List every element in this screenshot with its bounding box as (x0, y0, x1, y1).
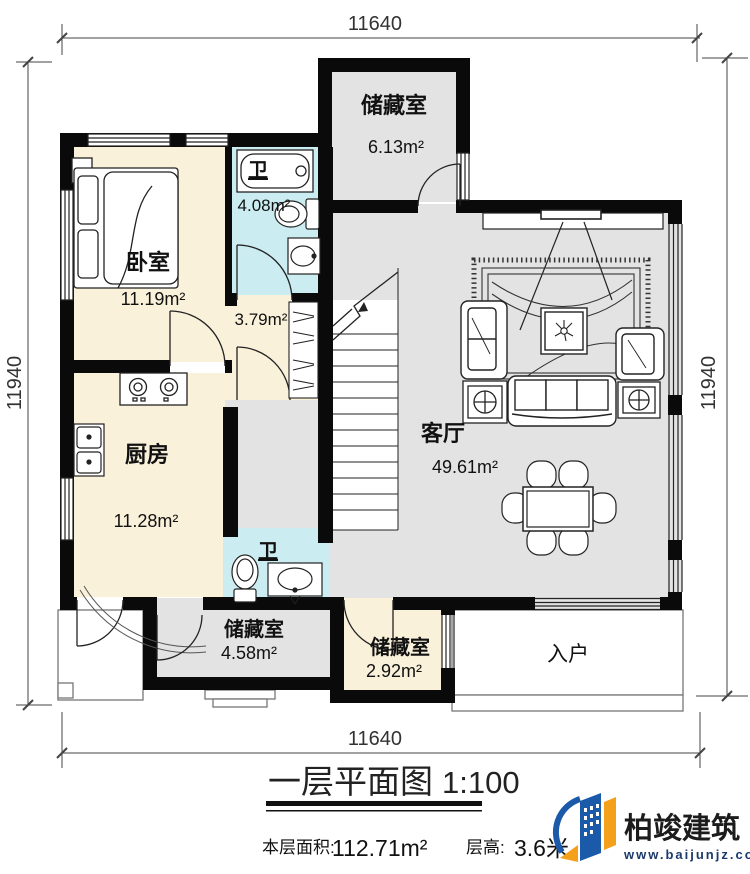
floor-area-value: 112.71m² (332, 835, 428, 861)
sofa-right (616, 328, 664, 380)
tv (541, 210, 601, 219)
bath-bottom-label: 卫 (258, 541, 278, 563)
back-step-1 (205, 690, 275, 699)
stove (120, 373, 187, 405)
brand-name: 柏竣建筑 (624, 811, 740, 845)
toilet-bottom (232, 555, 258, 602)
kitchen-floor (72, 373, 225, 597)
bedroom-top-window-1 (88, 134, 170, 146)
storage-top-side-window (457, 153, 469, 200)
porch-column (58, 683, 73, 698)
hall-area: 3.79m² (235, 310, 288, 329)
title-block: 一层平面图 1:100 本层面积: 112.71m² 层高: 3.6米 (262, 763, 569, 861)
side-table-right (618, 382, 660, 418)
dim-top: 11640 (348, 13, 402, 35)
storage-top-label: 储藏室 (361, 93, 427, 118)
dining-chair (559, 461, 588, 489)
bedroom-left-window (61, 190, 73, 300)
dim-bottom: 11640 (348, 728, 402, 750)
title-underline-thick (266, 801, 482, 806)
bedroom-label: 卧室 (126, 250, 170, 275)
brand-logo: 柏竣建筑 www.baijunjz.com (556, 793, 750, 862)
pillow (78, 230, 98, 278)
plan-title: 一层平面图 (268, 763, 433, 800)
kitchen-sink (74, 424, 104, 476)
bath-top-label: 卫 (248, 160, 268, 182)
floor-height-label: 层高: (466, 838, 505, 857)
kitchen-left-window (61, 478, 73, 540)
title-underline-thin (266, 810, 482, 812)
floorplan-page: 柏竣建筑 www.baijunjz.com 柏竣建筑 www.baijunjz.… (0, 0, 750, 874)
storage-right-area: 2.92m² (366, 661, 422, 681)
side-table-left (463, 381, 507, 423)
plan-scale: 1:100 (442, 765, 520, 800)
storage-left-label: 储藏室 (224, 617, 284, 641)
bedroom-top-window-2 (186, 134, 228, 146)
bath-top-area: 4.08m² (238, 196, 291, 215)
dim-right: 11940 (698, 356, 720, 410)
sofa-main (508, 376, 616, 426)
kitchen-label: 厨房 (125, 442, 169, 467)
floor-area-label: 本层面积: (262, 838, 335, 857)
dining-chair (527, 461, 556, 489)
hall-wardrobe (289, 302, 318, 398)
storage-top-area: 6.13m² (368, 137, 424, 157)
dim-left: 11940 (4, 356, 26, 410)
entrance-label: 入户 (547, 643, 589, 666)
basin-top (288, 238, 320, 274)
entrance-step (452, 695, 683, 711)
living-label: 客厅 (421, 421, 465, 446)
brand-url: www.baijunjz.com (623, 847, 750, 862)
kitchen-area: 11.28m² (114, 511, 179, 531)
staircase (333, 268, 398, 530)
floorplan-drawing: 柏竣建筑 www.baijunjz.com 柏竣建筑 www.baijunjz.… (0, 0, 750, 874)
sofa-left (461, 301, 507, 379)
storage-left-area: 4.58m² (221, 643, 277, 663)
storage-right-label: 储藏室 (370, 635, 430, 659)
back-step-2 (213, 699, 267, 707)
living-area: 49.61m² (432, 457, 498, 477)
storage-top-floor (330, 70, 458, 202)
bedroom-area: 11.19m² (121, 289, 186, 309)
coffee-table (541, 308, 587, 354)
pillow (78, 176, 98, 224)
